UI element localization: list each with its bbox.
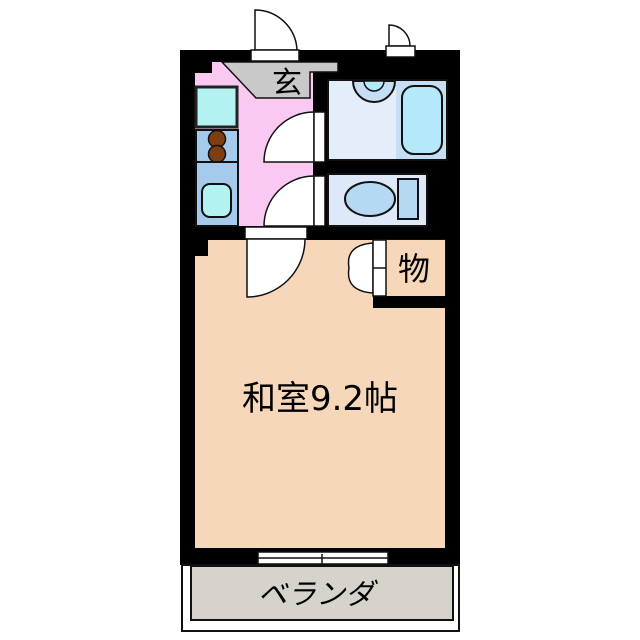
toilet-door-leaf (314, 176, 325, 226)
window-leaf (386, 46, 415, 57)
closet-label: 物 (398, 250, 430, 288)
floorplan-canvas: 玄 物 和室9.2帖 ベランダ (0, 0, 640, 640)
toilet-icon (345, 182, 395, 216)
wall-step-kitchen (195, 62, 212, 73)
entrance-label: 玄 (272, 66, 302, 101)
main-room-label: 和室9.2帖 (242, 379, 398, 419)
kitchen-counter-icon (196, 87, 237, 127)
main-door-threshold (245, 227, 307, 239)
window-swing-icon (389, 25, 410, 46)
stove-burner-icon (209, 146, 226, 163)
entrance-door-swing-icon (255, 10, 297, 50)
floorplan-drawing: 玄 物 和室9.2帖 ベランダ (0, 0, 640, 640)
toilet-tank (398, 179, 418, 219)
closet-door-swing-icon (349, 243, 374, 293)
wall-below-closet (373, 296, 445, 308)
balcony-label: ベランダ (256, 577, 380, 610)
bathroom-door-leaf (314, 112, 325, 162)
bathtub-icon (402, 86, 442, 154)
entrance-door-leaf (251, 50, 299, 61)
sink-basin-icon (202, 184, 231, 217)
wall-step-main-room (195, 240, 208, 256)
